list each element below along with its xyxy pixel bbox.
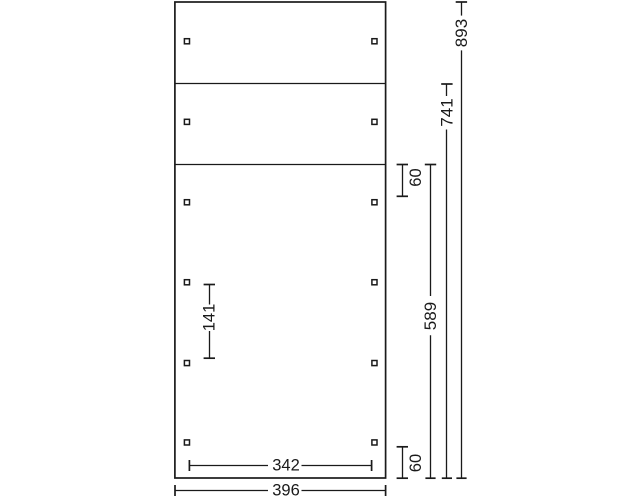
svg-text:741: 741 [438, 98, 457, 126]
svg-text:141: 141 [200, 304, 218, 332]
svg-text:396: 396 [272, 481, 300, 499]
svg-text:60: 60 [407, 168, 425, 186]
svg-text:342: 342 [272, 457, 300, 475]
svg-text:893: 893 [452, 19, 471, 47]
svg-text:60: 60 [407, 454, 425, 472]
svg-text:589: 589 [421, 302, 440, 330]
